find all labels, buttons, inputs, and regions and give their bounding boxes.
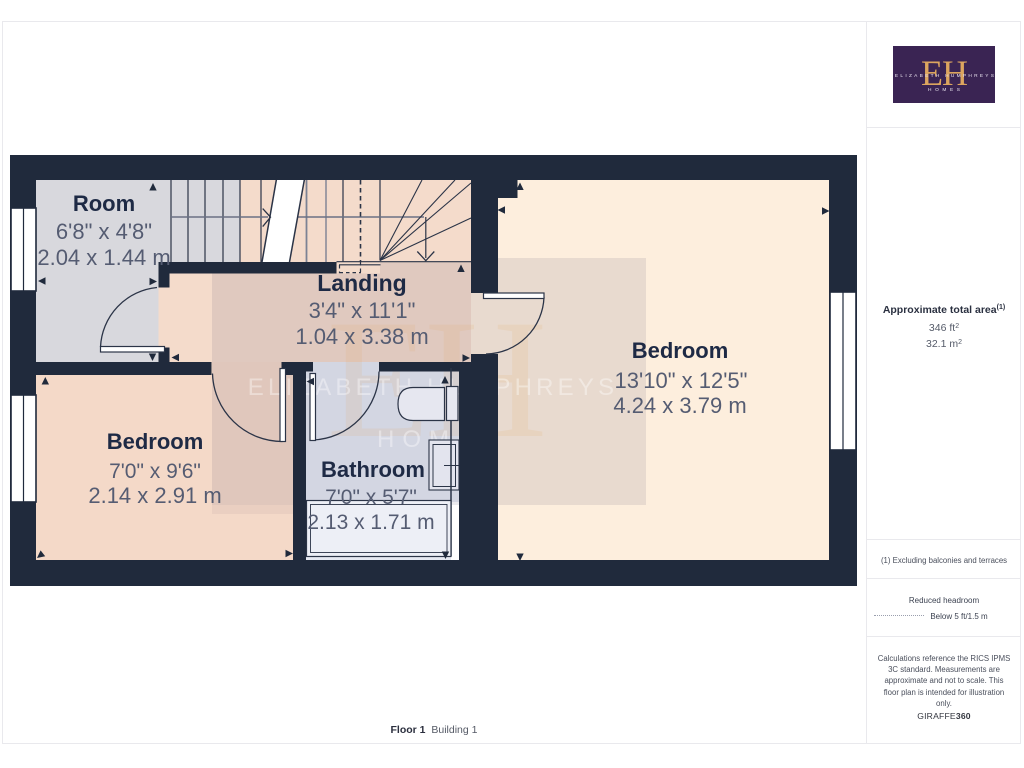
svg-text:Bathroom: Bathroom	[321, 457, 425, 482]
svg-text:7'0" x 9'6": 7'0" x 9'6"	[109, 460, 201, 483]
svg-text:6'8" x 4'8": 6'8" x 4'8"	[56, 219, 152, 244]
svg-text:EH: EH	[921, 53, 967, 93]
svg-text:3'4" x 11'1": 3'4" x 11'1"	[309, 298, 416, 323]
svg-text:HOMES: HOMES	[928, 87, 964, 93]
svg-text:Bedroom: Bedroom	[107, 429, 204, 454]
svg-text:ELIZABETH HUMPHREYS: ELIZABETH HUMPHREYS	[895, 73, 995, 79]
svg-text:7'0" x 5'7": 7'0" x 5'7"	[325, 486, 417, 509]
svg-text:4.24 x 3.79 m: 4.24 x 3.79 m	[613, 393, 746, 418]
svg-text:Landing: Landing	[317, 270, 406, 296]
svg-text:Bedroom: Bedroom	[632, 338, 729, 363]
svg-text:Room: Room	[73, 191, 135, 216]
svg-text:2.13 x 1.71 m: 2.13 x 1.71 m	[307, 511, 434, 534]
svg-text:1.04 x 3.38 m: 1.04 x 3.38 m	[295, 324, 428, 349]
svg-text:2.14 x 2.91 m: 2.14 x 2.91 m	[88, 483, 221, 508]
svg-text:13'10" x 12'5": 13'10" x 12'5"	[615, 368, 748, 393]
svg-text:2.04 x 1.44 m: 2.04 x 1.44 m	[37, 245, 170, 270]
